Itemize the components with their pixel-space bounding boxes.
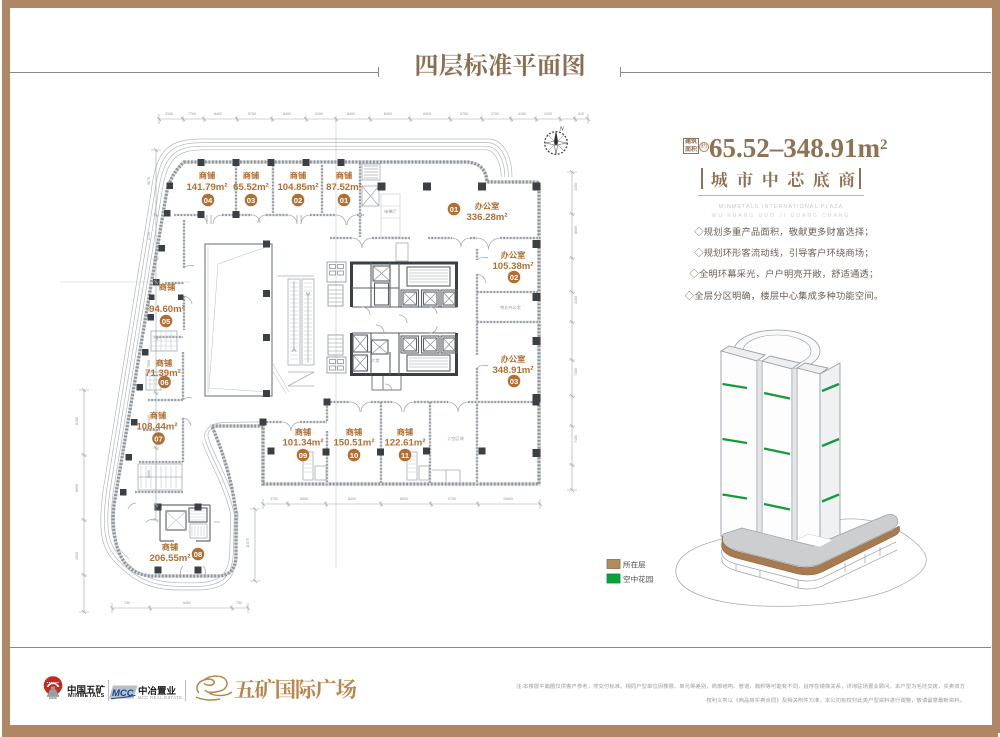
svg-text:01: 01 [340, 196, 349, 205]
svg-text:65.52m²: 65.52m² [233, 182, 269, 193]
svg-text:94.60m²: 94.60m² [149, 304, 185, 315]
svg-text:3700: 3700 [270, 497, 278, 501]
svg-text:办公室: 办公室 [501, 354, 526, 364]
svg-text:5750: 5750 [248, 112, 256, 116]
svg-text:商铺: 商铺 [243, 171, 259, 181]
svg-text:办公室: 办公室 [501, 250, 526, 260]
svg-text:01: 01 [450, 205, 459, 214]
svg-text:商铺: 商铺 [150, 411, 166, 421]
svg-text:9400: 9400 [183, 601, 191, 605]
svg-text:5750: 5750 [460, 112, 468, 116]
svg-text:09: 09 [299, 451, 307, 460]
svg-text:3150: 3150 [574, 296, 578, 304]
svg-text:101.34m²: 101.34m² [282, 438, 323, 449]
svg-text:750: 750 [236, 601, 242, 605]
svg-text:商铺: 商铺 [397, 427, 413, 437]
svg-text:空中花园: 空中花园 [623, 575, 653, 584]
svg-text:8000: 8000 [400, 497, 408, 501]
svg-text:11: 11 [401, 451, 410, 460]
svg-text:03: 03 [510, 377, 518, 386]
svg-text:8400: 8400 [347, 112, 355, 116]
svg-text:8400: 8400 [283, 112, 291, 116]
svg-text:2700: 2700 [491, 112, 499, 116]
svg-text:商铺: 商铺 [159, 282, 175, 292]
svg-text:3150: 3150 [165, 112, 173, 116]
svg-text:150.51m²: 150.51m² [333, 438, 374, 449]
svg-text:9670: 9670 [147, 177, 151, 185]
svg-text:8650: 8650 [75, 484, 79, 492]
svg-text:348.91m²: 348.91m² [492, 365, 533, 376]
svg-text:8200: 8200 [75, 417, 79, 425]
svg-text:商铺: 商铺 [346, 427, 362, 437]
svg-text:商铺: 商铺 [199, 171, 215, 181]
svg-text:4150: 4150 [518, 112, 526, 116]
svg-text:物业办公室: 物业办公室 [500, 305, 521, 310]
svg-text:03: 03 [247, 196, 255, 205]
svg-text:410: 410 [578, 112, 584, 116]
svg-text:05: 05 [162, 317, 171, 326]
svg-text:10: 10 [350, 451, 358, 460]
svg-text:7300: 7300 [574, 368, 578, 376]
svg-text:104.85m²: 104.85m² [277, 182, 318, 193]
svg-text:10600: 10600 [503, 497, 513, 501]
svg-text:5150: 5150 [315, 112, 323, 116]
svg-text:电梯厅: 电梯厅 [384, 209, 397, 214]
svg-text:108.44m²: 108.44m² [136, 422, 177, 433]
svg-text:大堂: 大堂 [371, 358, 379, 363]
svg-text:5600: 5600 [147, 470, 151, 478]
svg-text:商铺: 商铺 [290, 171, 306, 181]
svg-text:4920: 4920 [75, 552, 79, 560]
svg-text:7700: 7700 [188, 112, 196, 116]
svg-text:206.55m²: 206.55m² [149, 553, 190, 564]
svg-text:02: 02 [294, 196, 302, 205]
svg-text:五矿国际广场: 五矿国际广场 [234, 678, 357, 702]
svg-text:07: 07 [154, 434, 162, 443]
svg-text:8400: 8400 [214, 112, 222, 116]
svg-text:商铺: 商铺 [156, 358, 172, 368]
svg-text:商铺: 商铺 [295, 427, 311, 437]
svg-text:办公室: 办公室 [475, 201, 500, 211]
svg-text:87.52m²: 87.52m² [326, 182, 362, 193]
svg-text:3450: 3450 [574, 183, 578, 191]
svg-text:8400: 8400 [348, 497, 356, 501]
svg-text:7500: 7500 [147, 360, 151, 368]
svg-text:141.79m²: 141.79m² [186, 182, 227, 193]
svg-text:08: 08 [194, 550, 202, 559]
svg-text:04: 04 [204, 196, 213, 205]
svg-text:740: 740 [124, 601, 130, 605]
svg-text:336.28m²: 336.28m² [466, 212, 507, 223]
svg-text:122.61m²: 122.61m² [384, 438, 425, 449]
svg-text:N: N [559, 126, 565, 133]
svg-text:5650: 5650 [300, 497, 308, 501]
svg-text:8400: 8400 [384, 112, 392, 116]
svg-text:5750: 5750 [448, 497, 456, 501]
svg-text:4100: 4100 [544, 112, 552, 116]
svg-text:ES000: ES000 [49, 696, 57, 700]
svg-text:商铺: 商铺 [162, 542, 178, 552]
svg-text:06: 06 [160, 378, 168, 387]
svg-text:2750: 2750 [147, 232, 151, 240]
svg-text:商铺: 商铺 [336, 171, 352, 181]
svg-text:所在层: 所在层 [623, 561, 646, 570]
svg-text:8600: 8600 [574, 226, 578, 234]
svg-text:7450: 7450 [574, 435, 578, 443]
svg-text:11075: 11075 [246, 538, 250, 548]
svg-text:8400: 8400 [423, 112, 431, 116]
svg-text:上空区域: 上空区域 [447, 436, 465, 441]
svg-text:105.38m²: 105.38m² [492, 261, 533, 272]
svg-text:02: 02 [510, 273, 518, 282]
